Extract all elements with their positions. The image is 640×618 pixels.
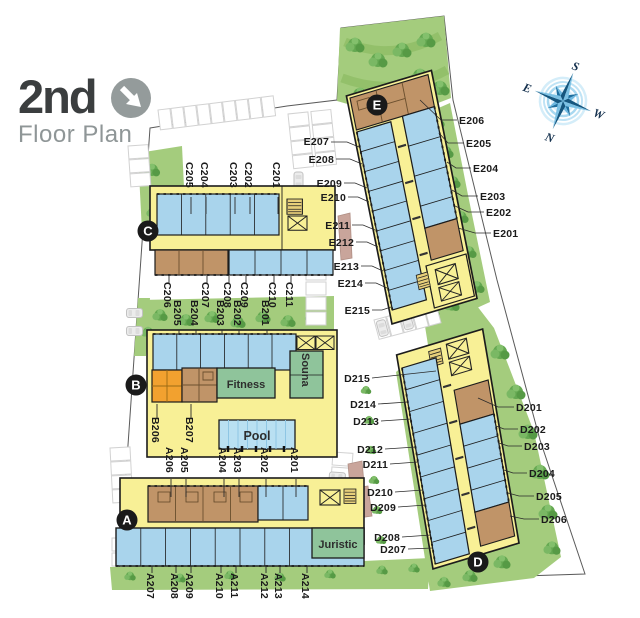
unit-label: B203 bbox=[214, 300, 226, 326]
unit-label: E214 bbox=[338, 278, 363, 290]
room-label-fitness: Fitness bbox=[227, 379, 266, 391]
unit-label: A214 bbox=[299, 573, 311, 599]
unit-label: D204 bbox=[529, 468, 555, 480]
compass-east: E bbox=[520, 80, 533, 96]
svg-text:B: B bbox=[131, 378, 140, 393]
badge-c: C bbox=[138, 221, 159, 242]
svg-text:A: A bbox=[122, 513, 132, 528]
unit-label: D202 bbox=[520, 424, 546, 436]
svg-text:D: D bbox=[473, 555, 482, 570]
unit-label: C202 bbox=[242, 162, 254, 188]
unit-label: B206 bbox=[149, 417, 161, 443]
unit-label: D207 bbox=[380, 544, 406, 556]
unit-label: A210 bbox=[213, 573, 225, 599]
unit-label: D208 bbox=[374, 532, 400, 544]
unit-label: E211 bbox=[325, 220, 350, 232]
title-block: 2nd Floor Plan bbox=[18, 70, 151, 148]
direction-icon bbox=[111, 78, 151, 118]
unit-label: D210 bbox=[367, 487, 393, 499]
unit-label: B207 bbox=[183, 417, 195, 443]
badge-a: A bbox=[117, 510, 138, 531]
unit-label: C211 bbox=[283, 282, 295, 307]
unit-label: D205 bbox=[536, 491, 562, 503]
unit-label: C201 bbox=[270, 162, 282, 188]
unit-label: A205 bbox=[178, 447, 190, 473]
unit-label: A202 bbox=[258, 447, 270, 473]
room-label-pool: Pool bbox=[243, 429, 270, 443]
building-a bbox=[116, 478, 364, 566]
unit-label: D213 bbox=[353, 416, 379, 428]
unit-label: A212 bbox=[258, 573, 270, 599]
unit-label: E210 bbox=[321, 192, 346, 204]
compass-south: S bbox=[570, 59, 581, 75]
page-title: 2nd bbox=[18, 70, 96, 123]
unit-label: A206 bbox=[163, 447, 175, 473]
unit-label: E203 bbox=[480, 191, 505, 203]
badge-e: E bbox=[367, 95, 388, 116]
unit-label: C205 bbox=[183, 162, 195, 188]
floor-plan-drawing: C205 C204 C203 C202 C201 C206 C207 C208 … bbox=[0, 0, 640, 618]
unit-label: E204 bbox=[473, 163, 498, 175]
svg-text:E: E bbox=[373, 98, 382, 113]
unit-label: A207 bbox=[144, 573, 156, 599]
floor-plan-page: C205 C204 C203 C202 C201 C206 C207 C208 … bbox=[0, 0, 640, 618]
unit-label: D211 bbox=[363, 459, 388, 471]
unit-label: E212 bbox=[329, 237, 354, 249]
unit-label: E206 bbox=[459, 115, 484, 127]
unit-label: A204 bbox=[216, 447, 228, 473]
building-b bbox=[147, 330, 337, 457]
unit-label: D206 bbox=[541, 514, 567, 526]
svg-text:C: C bbox=[143, 224, 153, 239]
unit-label: D215 bbox=[344, 373, 370, 385]
unit-label: E201 bbox=[493, 228, 518, 240]
unit-label: A209 bbox=[183, 573, 195, 599]
unit-label: D201 bbox=[516, 402, 542, 414]
unit-label: C204 bbox=[198, 162, 210, 188]
unit-label: E215 bbox=[345, 305, 370, 317]
badge-b: B bbox=[126, 375, 147, 396]
page-subtitle: Floor Plan bbox=[18, 121, 132, 148]
unit-label: C203 bbox=[227, 162, 239, 188]
room-label-sauna: Souna bbox=[299, 353, 311, 387]
room-label-juristic: Juristic bbox=[318, 539, 357, 551]
unit-label: D209 bbox=[370, 502, 396, 514]
unit-label: E208 bbox=[309, 154, 334, 166]
unit-label: A201 bbox=[288, 447, 300, 473]
unit-label: E207 bbox=[304, 136, 329, 148]
unit-label: A208 bbox=[168, 573, 180, 599]
unit-label: D203 bbox=[524, 441, 550, 453]
unit-label: A211 bbox=[228, 573, 240, 598]
unit-label: B204 bbox=[188, 300, 200, 326]
unit-label: E209 bbox=[317, 178, 342, 190]
unit-label: B205 bbox=[171, 300, 183, 326]
unit-label: A213 bbox=[272, 573, 284, 599]
unit-label: E202 bbox=[486, 207, 511, 219]
unit-label: D212 bbox=[357, 444, 383, 456]
unit-label: E213 bbox=[334, 261, 359, 273]
unit-label: B202 bbox=[231, 300, 243, 326]
unit-label: B201 bbox=[259, 300, 271, 326]
unit-label: D214 bbox=[350, 399, 376, 411]
building-c bbox=[150, 186, 335, 275]
unit-label: E205 bbox=[466, 138, 491, 150]
compass-north: N bbox=[542, 129, 557, 146]
badge-d: D bbox=[468, 552, 489, 573]
unit-label: A203 bbox=[231, 447, 243, 473]
compass-rose: S N E W bbox=[507, 45, 620, 160]
compass-west: W bbox=[591, 106, 607, 123]
